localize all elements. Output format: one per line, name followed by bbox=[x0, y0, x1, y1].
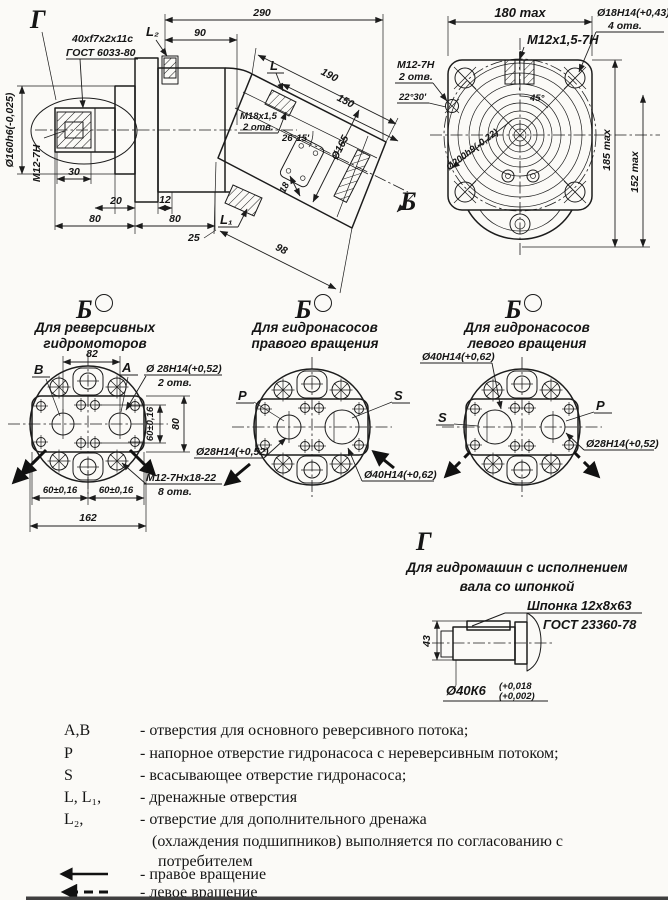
view-b2-caption2: правого вращения bbox=[252, 336, 379, 351]
dim-82: 82 bbox=[86, 348, 98, 360]
b1-thread-label: M12-7Hх18-22 bbox=[146, 472, 216, 484]
legend-text-s: - всасывающее отверстие гидронасоса; bbox=[140, 767, 406, 784]
m18-holes-label: 2 отв. bbox=[242, 122, 274, 133]
shaft-dia-label: Ø160h6(-0,025) bbox=[4, 92, 16, 167]
port-b-label: B bbox=[34, 362, 43, 377]
dim-90: 90 bbox=[194, 27, 206, 39]
dim-180-label: 180 max bbox=[494, 5, 546, 20]
dim-12: 12 bbox=[159, 194, 171, 206]
tol-lower-label: (+0,002) bbox=[499, 691, 535, 702]
dim-18: 18 bbox=[277, 180, 292, 195]
view-rotation-symbol bbox=[96, 295, 113, 312]
port-p-label: P bbox=[596, 398, 605, 413]
side-view: Г 40xf7x2x11c ГОСТ 6033-80 L₂ 290 90 L 1… bbox=[4, 5, 417, 293]
legend-right-rot: - правое вращение bbox=[140, 866, 266, 883]
view-b-right-rotation: Б Для гидронасосов правого вращения P S … bbox=[194, 295, 437, 498]
dim-80b: 80 bbox=[169, 213, 181, 225]
dim-60b: 60±0,16 bbox=[99, 485, 134, 496]
dim-80: 80 bbox=[170, 418, 182, 430]
m12-label: M12-7H bbox=[31, 144, 43, 182]
legend-text-p: - напорное отверстие гидронасоса с нерев… bbox=[140, 745, 559, 762]
key-gost-label: ГОСТ 23360-78 bbox=[543, 617, 637, 632]
spline-spec-label: 40xf7x2x11c bbox=[71, 33, 133, 45]
dim-30: 30 bbox=[68, 166, 80, 178]
b3-dia28-label: Ø28H14(+0,52) bbox=[586, 438, 659, 450]
port-a-label: A bbox=[121, 360, 131, 375]
angle-45-label: 45° bbox=[529, 93, 545, 104]
dim-25: 25 bbox=[187, 232, 200, 244]
b3-dia40-label: Ø40H14(+0,62) bbox=[422, 351, 495, 363]
front-view: 180 max M12x1,5-7H Ø18H14(+0,43) 4 отв. … bbox=[395, 5, 668, 258]
b2-dia28-label: Ø28H14(+0,52) bbox=[196, 446, 269, 458]
view-rotation-symbol bbox=[525, 295, 542, 312]
dim-152-label: 152 max bbox=[629, 150, 641, 193]
legend: А,В - отверстия для основного реверсивно… bbox=[62, 722, 563, 900]
b1-thread-holes-label: 8 отв. bbox=[158, 486, 192, 498]
legend-cont1: (охлаждения подшипников) выполняется по … bbox=[152, 833, 563, 850]
dia-200-label: Ø200h9(-0,22) bbox=[444, 127, 500, 173]
m18-label: M18x1,5 bbox=[240, 111, 278, 122]
dim-98: 98 bbox=[273, 241, 289, 257]
drawing-page: Г 40xf7x2x11c ГОСТ 6033-80 L₂ 290 90 L 1… bbox=[0, 0, 668, 900]
legend-text-l: - дренажные отверстия bbox=[140, 789, 298, 806]
port-s-label: S bbox=[394, 388, 403, 403]
section-g-caption2: вала со шпонкой bbox=[460, 579, 576, 594]
view-rotation-symbol bbox=[315, 295, 332, 312]
legend-sym-l2: L₂, bbox=[64, 811, 83, 828]
dim-185-label: 185 max bbox=[601, 128, 613, 171]
dim-60a: 60±0,16 bbox=[43, 485, 78, 496]
dim-43: 43 bbox=[421, 635, 433, 648]
dia-18-holes-label: 4 отв. bbox=[607, 20, 642, 32]
section-g-caption1: Для гидромашин с исполнением bbox=[405, 560, 627, 575]
view-b-reversible: Б Для реверсивных гидромоторов B A 82 Ø … bbox=[8, 295, 222, 533]
legend-text-l2: - отверстие для дополнительного дренажа bbox=[140, 811, 427, 828]
detail-g-label: Г bbox=[29, 5, 46, 34]
dim-60v: 60±0,16 bbox=[145, 406, 156, 441]
thread-side-label: M12-7H bbox=[397, 59, 435, 71]
legend-sym-p: Р bbox=[64, 745, 73, 762]
view-b1-caption1: Для реверсивных bbox=[34, 320, 156, 335]
angle-26-label: 26°15' bbox=[281, 133, 310, 144]
port-s-label: S bbox=[438, 410, 447, 425]
dim-80a: 80 bbox=[89, 213, 101, 225]
section-g: Г Для гидромашин с исполнением вала со ш… bbox=[405, 527, 642, 702]
view-b2-caption1: Для гидронасосов bbox=[251, 320, 377, 335]
shaft-body bbox=[453, 627, 515, 660]
view-b3-caption1: Для гидронасосов bbox=[463, 320, 589, 335]
thread-top-label: M12x1,5-7H bbox=[527, 32, 599, 47]
section-g-label: Г bbox=[415, 527, 432, 556]
b-view-label: Б bbox=[399, 187, 417, 216]
dim-290: 290 bbox=[252, 7, 271, 19]
legend-sym-s: S bbox=[64, 767, 73, 784]
l-label: L bbox=[270, 58, 278, 73]
key-spec-label: Шпонка 12х8х63 bbox=[527, 598, 632, 613]
shaft-dia-g-label: Ø40К6 bbox=[446, 683, 487, 698]
dia-165-label: Ø165 bbox=[329, 133, 351, 161]
top-boss bbox=[505, 52, 534, 92]
spline-gost-label: ГОСТ 6033-80 bbox=[66, 47, 136, 59]
l2-label: L₂ bbox=[146, 24, 159, 39]
dia-18-label: Ø18H14(+0,43) bbox=[597, 7, 668, 19]
l1-label: L₁ bbox=[220, 212, 233, 227]
b2-dia40-label: Ø40H14(+0,62) bbox=[364, 469, 437, 481]
technical-drawing: Г 40xf7x2x11c ГОСТ 6033-80 L₂ 290 90 L 1… bbox=[0, 0, 668, 900]
legend-sym-l: L, L₁, bbox=[64, 789, 101, 806]
dim-190: 190 bbox=[319, 66, 340, 85]
dim-150: 150 bbox=[335, 92, 356, 111]
b1-dia28-holes-label: 2 отв. bbox=[157, 377, 192, 389]
view-b-left-rotation: Б Для гидронасосов левого вращения Ø40H1… bbox=[420, 295, 659, 498]
thread-side-holes-label: 2 отв. bbox=[398, 71, 433, 83]
dim-162: 162 bbox=[79, 512, 97, 524]
b1-dia28-label: Ø 28H14(+0,52) bbox=[146, 363, 222, 375]
legend-sym-ab: А,В bbox=[64, 722, 90, 739]
port-p-label: P bbox=[238, 388, 247, 403]
legend-text-ab: - отверстия для основного реверсивного п… bbox=[140, 722, 468, 739]
dim-20: 20 bbox=[109, 195, 122, 207]
view-b3-caption2: левого вращения bbox=[467, 336, 587, 351]
angle-2230-label: 22°30' bbox=[398, 92, 427, 103]
bottom-scan-bar bbox=[26, 897, 668, 900]
